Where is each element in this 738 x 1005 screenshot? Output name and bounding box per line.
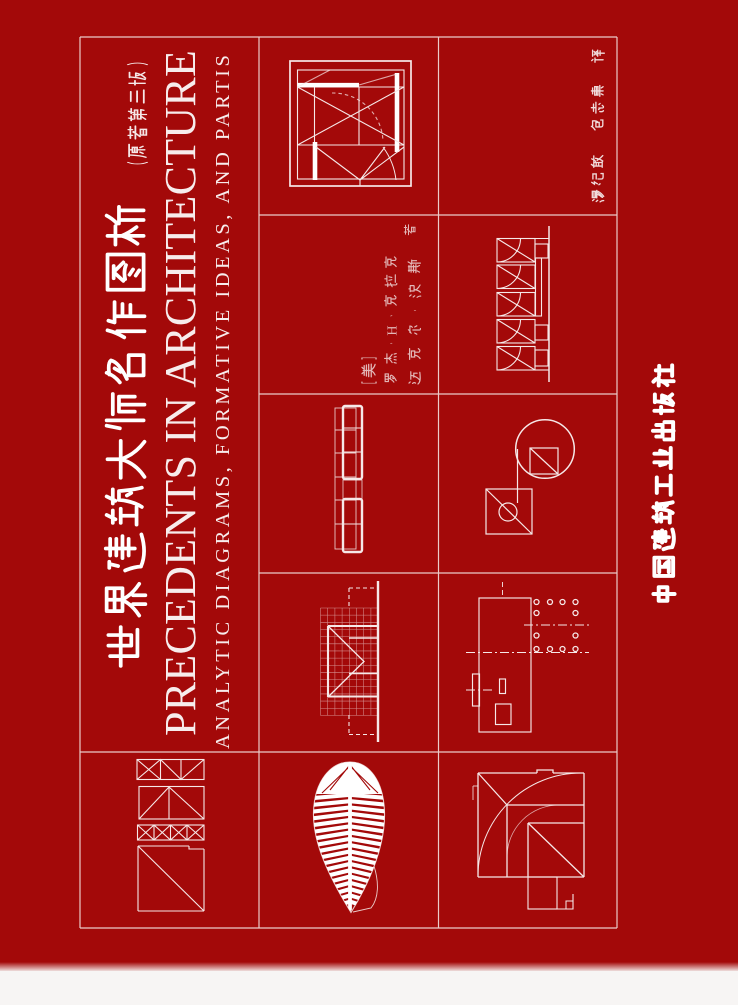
svg-text:H: H: [386, 325, 401, 335]
svg-text:ANALYTIC DIAGRAMS, FORMATIVE I: ANALYTIC DIAGRAMS, FORMATIVE IDEAS, AND …: [212, 52, 234, 749]
svg-text:PRECEDENTS IN ARCHITECTURE: PRECEDENTS IN ARCHITECTURE: [156, 50, 205, 736]
